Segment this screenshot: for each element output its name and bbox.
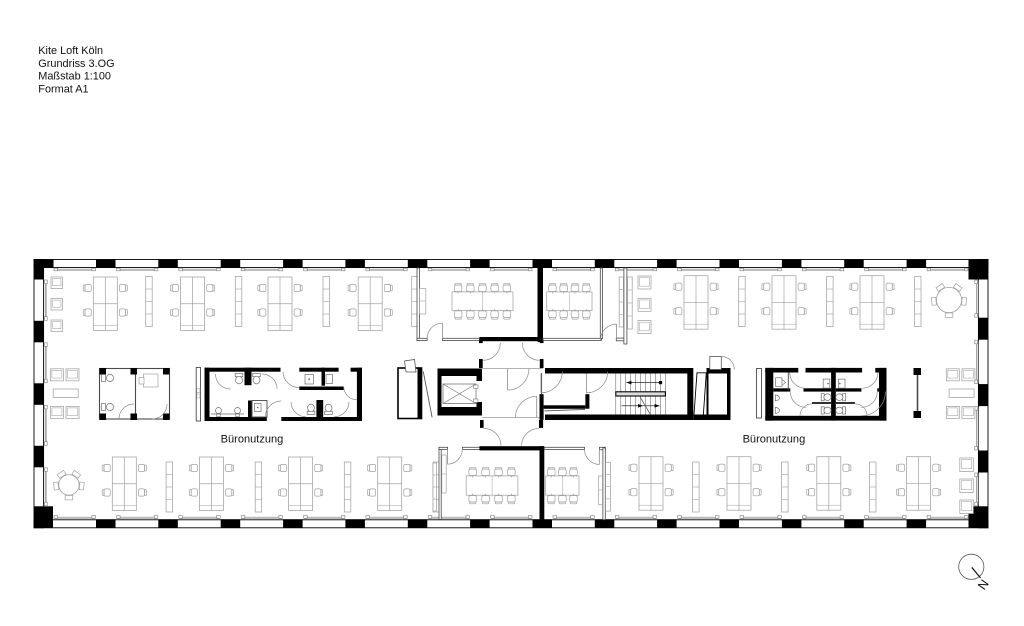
svg-text:Format A1: Format A1 <box>38 83 88 95</box>
svg-text:Büronutzung: Büronutzung <box>221 434 284 446</box>
svg-text:Maßstab 1:100: Maßstab 1:100 <box>38 71 111 83</box>
svg-text:Grundriss 3.OG: Grundriss 3.OG <box>38 58 114 70</box>
svg-text:Büronutzung: Büronutzung <box>743 434 806 446</box>
svg-text:Kite Loft Köln: Kite Loft Köln <box>38 45 103 57</box>
